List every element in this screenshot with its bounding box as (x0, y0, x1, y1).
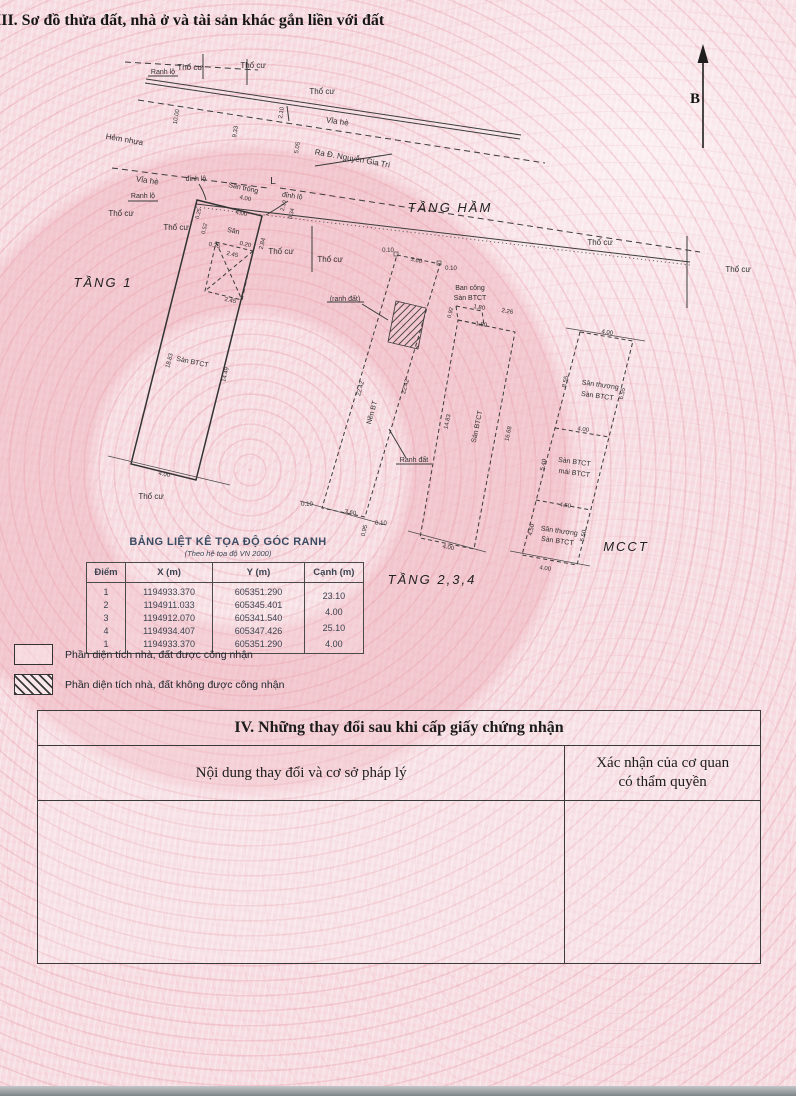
north-arrowhead (698, 44, 709, 63)
label-mai-btct: mái BTCT (558, 468, 591, 479)
dim-label: 2.10 (278, 106, 286, 119)
floor-label-tang-ham: TẦNG HẦM (408, 200, 493, 215)
cell-diem: 3 (87, 611, 126, 624)
dim-label: 0.10 (445, 266, 457, 272)
dim-label: 5.05 (294, 141, 302, 154)
tang1-annotations: TẦNG 1 Sân 0.25 0.52 0.35 0.20 2.45 2.45… (74, 200, 297, 479)
dim-label: 3.60 (344, 509, 357, 517)
label-via-he: Vỉa hè (135, 174, 159, 186)
section4-col2-header: Xác nhận của cơ quan có thẩm quyền (565, 746, 760, 801)
cell-diem: 2 (87, 598, 126, 611)
section4-table: IV. Những thay đổi sau khi cấp giấy chứn… (37, 710, 761, 964)
col-header-diem: Điểm (87, 563, 126, 583)
legend-label: Phần diện tích nhà, đất không được công … (65, 679, 284, 691)
label-san-btct: Sàn BTCT (471, 409, 485, 443)
dim-label: 2.45 (224, 297, 237, 305)
label-san-trong: Sân trống (228, 180, 260, 195)
legend-label: Phần diện tích nhà, đất được công nhận (65, 649, 253, 661)
label-dinh-lo: đỉnh lộ (186, 175, 207, 183)
dim-label: 4.00 (442, 544, 455, 552)
legend-item-recognized: Phần diện tích nhà, đất được công nhận (14, 644, 284, 665)
cell-x: 1194933.370 (125, 583, 212, 599)
dim-label: 0.20 (239, 241, 252, 249)
label-tho-cu: Thổ cư (268, 247, 294, 256)
coordinate-table-block: BẢNG LIỆT KÊ TỌA ĐỘ GÓC RANH (Theo hệ tọ… (86, 536, 370, 654)
canh-value: 4.00 (307, 607, 361, 617)
dim-label: 10.00 (173, 108, 182, 124)
mcct-annotations: 4.00 Sân thượng Sàn BTCT 8.55 6.55 4.00 … (528, 329, 649, 573)
dim-label: 2.26 (501, 308, 514, 316)
label-via-he: Vỉa hè (325, 115, 349, 127)
canh-value: 25.10 (307, 623, 361, 633)
dim-label: 5.40 (540, 458, 548, 471)
coordinate-table-subtitle: (Theo hệ tọa độ VN 2000) (86, 549, 370, 558)
label-tho-cu: Thổ cư (138, 492, 164, 501)
cell-y: 605347.426 (213, 625, 305, 638)
canh-value: 23.10 (307, 591, 361, 601)
dim-label: 4.50 (528, 523, 536, 536)
section4-col1-body (38, 801, 564, 963)
north-label: B (690, 91, 700, 107)
col-header-canh: Cạnh (m) (304, 563, 363, 583)
section4-title: IV. Những thay đổi sau khi cấp giấy chứn… (38, 711, 760, 746)
recognized-area-swatch (14, 644, 53, 665)
label-tho-cu: Thổ cư (177, 63, 203, 72)
dim-label: 0.25 (195, 208, 203, 220)
canh-value: 4.00 (307, 639, 361, 649)
label-ra-duong: Ra Đ. Nguyễn Gia Trí (314, 147, 392, 169)
dim-label: 2.10 (280, 200, 288, 212)
street-labels: Thổ cư Ranh lộ Thổ cư Thổ cư Vỉa hè Hẻm … (105, 61, 751, 501)
dim-label: 4.00 (539, 565, 552, 573)
cell-y: 605341.540 (213, 611, 305, 624)
floor-plan-tang-ham (300, 252, 441, 525)
legend: Phần diện tích nhà, đất được công nhận P… (14, 644, 284, 704)
dim-label: 0.10 (375, 521, 387, 527)
label-tho-cu: Thổ cư (317, 255, 343, 264)
dim-label: 2.84 (259, 237, 268, 250)
floor-label-tang1: TẦNG 1 (74, 275, 133, 290)
dim-label: 18.83 (165, 352, 175, 369)
section4-col2-line2: có thẩm quyền (619, 773, 707, 792)
floor-label-mcct: MCCT (603, 539, 649, 554)
cell-x: 1194934.407 (125, 625, 212, 638)
dim-label: 22.42 (356, 380, 366, 397)
dim-label: 4.00 (158, 471, 171, 479)
dim-label: 0.35 (208, 242, 221, 250)
col-header-x: X (m) (125, 563, 212, 583)
label-san-thuong: Sân thượng (581, 379, 619, 391)
col-header-y: Y (m) (213, 563, 305, 583)
not-recognized-area-swatch (14, 674, 53, 695)
label-tho-cu: Thổ cư (725, 265, 751, 274)
cell-x: 1194911.033 (125, 598, 212, 611)
dim-label: 0.10 (382, 248, 394, 254)
label-tho-cu: Thổ cư (240, 61, 266, 70)
label-ranh-dat: (ranh đất) (330, 294, 360, 303)
label-ranh-lo: Ranh lộ (131, 193, 155, 200)
dim-label: 0.52 (201, 223, 209, 235)
label-ban-cong: Ban công (455, 285, 485, 292)
dim-label: 8.55 (562, 375, 570, 388)
label-tho-cu: Thổ cư (108, 209, 134, 218)
dim-label: 4.00 (577, 426, 590, 434)
leader-lines (128, 76, 432, 464)
coordinate-table-title: BẢNG LIỆT KÊ TỌA ĐỘ GÓC RANH (86, 536, 370, 548)
section4-col2-line1: Xác nhận của cơ quan (596, 754, 729, 773)
label-nen-bt: Nền BT (364, 399, 379, 425)
label-dinh-lo: đỉnh lộ (282, 191, 304, 202)
section4-col1-header: Nội dung thay đổi và cơ sở pháp lý (38, 746, 564, 801)
dim-label: 16.68 (505, 425, 514, 442)
cell-y: 605345.401 (213, 598, 305, 611)
label-san-btct: Sàn BTCT (581, 391, 615, 403)
dim-label: 0.92 (447, 307, 455, 319)
dim-label: 0.34 (288, 208, 296, 220)
cell-canh-stack: 23.10 4.00 25.10 4.00 (304, 583, 363, 654)
dim-label: 1.80 (473, 304, 486, 312)
dim-label: 1.80 (475, 321, 488, 329)
dim-label: 5.50 (580, 529, 588, 542)
dim-label: 9.33 (232, 125, 240, 138)
unrecognized-area-hatch (388, 301, 426, 349)
cell-diem: 1 (87, 583, 126, 599)
dim-label: 4.50 (559, 502, 572, 510)
dim-label: 3.60 (410, 257, 423, 265)
dim-label: 14.49 (221, 366, 231, 383)
north-arrow: B (690, 44, 709, 148)
label-ranh-lo: Ranh lộ (151, 69, 175, 76)
label-san-btct: Sàn BTCT (541, 536, 575, 548)
label-san-btct: Sàn BTCT (558, 457, 592, 469)
label-ranh-dat: Ranh đất (400, 455, 428, 464)
floor-label-tang234: TẦNG 2,3,4 (388, 572, 477, 587)
label-l-mark: L (270, 176, 276, 187)
dim-label: 0.10 (301, 502, 313, 508)
scan-edge-shadow (0, 1086, 796, 1096)
dim-label: 4.00 (235, 210, 248, 218)
label-tho-cu: Thổ cư (587, 238, 613, 247)
cell-y: 605351.290 (213, 583, 305, 599)
dim-label: 2.45 (226, 251, 239, 259)
legend-item-not-recognized: Phần diện tích nhà, đất không được công … (14, 674, 284, 695)
label-san-btct: Sàn BTCT (176, 356, 210, 370)
dim-label: 22.42 (401, 378, 411, 395)
label-san: Sân (226, 227, 240, 236)
label-tho-cu: Thổ cư (163, 223, 189, 232)
section4-col2-body (565, 801, 760, 963)
floor-plan-tang234 (408, 306, 515, 552)
label-hem-nhua: Hẻm nhựa (105, 132, 144, 148)
dim-label: 4.00 (239, 195, 252, 203)
cell-x: 1194912.070 (125, 611, 212, 624)
label-san-btct: Sàn BTCT (454, 295, 487, 302)
label-tho-cu: Thổ cư (309, 87, 335, 96)
cell-diem: 4 (87, 625, 126, 638)
table-row: 1 1194933.370 605351.290 23.10 4.00 25.1… (87, 583, 364, 599)
dim-label: 14.83 (444, 413, 453, 430)
dim-label: 6.55 (619, 387, 627, 400)
tang-ham-annotations: TẦNG HẦM 0.10 3.60 0.10 Nền BT 22.42 22.… (301, 200, 492, 537)
coordinate-table: Điểm X (m) Y (m) Cạnh (m) 1 1194933.370 … (86, 562, 364, 654)
